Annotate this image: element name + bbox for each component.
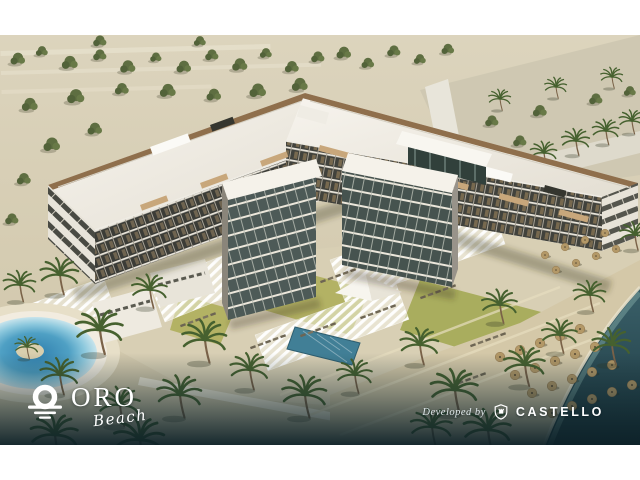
developer-name: CASTELLO [516, 405, 604, 419]
castello-shield-icon [494, 404, 508, 420]
logo-text-block: ORO Beach [71, 384, 147, 427]
oro-beach-logo: ORO Beach [28, 384, 147, 427]
developed-by-label: Developed by [422, 407, 485, 418]
sun-over-waves-icon [28, 384, 62, 422]
resort-aerial-rendering: ORO Beach Developed by CASTELLO [0, 35, 640, 445]
developer-credit: Developed by CASTELLO [422, 404, 604, 420]
